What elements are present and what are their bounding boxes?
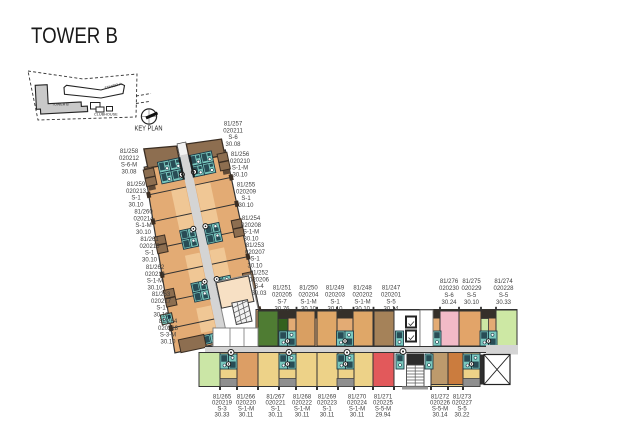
svg-text:81/263: 81/263 xyxy=(152,292,171,298)
svg-text:30.33: 30.33 xyxy=(496,300,512,306)
svg-text:30.14: 30.14 xyxy=(383,307,399,313)
svg-text:S-1: S-1 xyxy=(241,196,251,202)
svg-text:81/255: 81/255 xyxy=(237,183,256,189)
svg-text:020230: 020230 xyxy=(439,286,460,292)
svg-text:30.08: 30.08 xyxy=(225,142,241,148)
svg-text:81/258: 81/258 xyxy=(120,149,139,155)
svg-text:30.24: 30.24 xyxy=(441,300,457,306)
svg-text:30.10: 30.10 xyxy=(247,263,263,269)
svg-text:81/251: 81/251 xyxy=(273,286,292,292)
svg-text:30.11: 30.11 xyxy=(350,413,365,419)
svg-text:81/253: 81/253 xyxy=(246,243,265,249)
svg-text:81/274: 81/274 xyxy=(494,279,513,285)
svg-text:S-1-M: S-1-M xyxy=(147,279,163,285)
svg-text:020206: 020206 xyxy=(249,277,270,283)
svg-text:30.10: 30.10 xyxy=(136,230,152,236)
svg-text:81/247: 81/247 xyxy=(382,286,401,292)
svg-text:81/275: 81/275 xyxy=(462,279,481,285)
svg-text:S-7: S-7 xyxy=(277,300,287,306)
svg-text:020217: 020217 xyxy=(151,299,172,305)
svg-text:30.10: 30.10 xyxy=(327,307,343,313)
svg-text:020209: 020209 xyxy=(236,189,257,195)
svg-text:TOWER B: TOWER B xyxy=(52,103,69,107)
svg-text:020210: 020210 xyxy=(230,159,251,165)
svg-text:020228: 020228 xyxy=(493,286,514,292)
svg-text:30.10: 30.10 xyxy=(142,257,158,263)
svg-text:S-1-M: S-1-M xyxy=(243,230,259,236)
svg-text:81/276: 81/276 xyxy=(440,279,459,285)
svg-text:S-5: S-5 xyxy=(499,293,509,299)
svg-text:S-6: S-6 xyxy=(444,293,454,299)
svg-text:30.14: 30.14 xyxy=(432,413,448,419)
svg-text:KEY PLAN: KEY PLAN xyxy=(135,124,163,133)
svg-text:81/249: 81/249 xyxy=(326,286,345,292)
svg-text:020229: 020229 xyxy=(461,286,482,292)
svg-text:30.11: 30.11 xyxy=(295,413,310,419)
svg-text:30.76: 30.76 xyxy=(274,307,290,313)
svg-text:81/254: 81/254 xyxy=(242,216,261,222)
svg-text:020201: 020201 xyxy=(381,293,402,299)
svg-text:30.11: 30.11 xyxy=(268,413,283,419)
svg-text:CLUBHOUSE: CLUBHOUSE xyxy=(94,113,118,117)
svg-text:30.03: 30.03 xyxy=(251,291,267,297)
svg-text:S-1-M: S-1-M xyxy=(135,223,151,229)
svg-text:020207: 020207 xyxy=(245,250,266,256)
svg-text:30.11: 30.11 xyxy=(239,413,254,419)
svg-text:020203: 020203 xyxy=(325,293,346,299)
svg-text:S-5: S-5 xyxy=(386,300,396,306)
svg-text:020212: 020212 xyxy=(119,156,140,162)
svg-text:S-1-M: S-1-M xyxy=(300,300,316,306)
svg-text:020218: 020218 xyxy=(158,326,179,332)
svg-text:S-1: S-1 xyxy=(131,196,141,202)
svg-text:30.10: 30.10 xyxy=(147,285,163,291)
svg-text:S-6: S-6 xyxy=(228,135,238,141)
svg-text:81/256: 81/256 xyxy=(231,152,250,158)
svg-text:29.94: 29.94 xyxy=(375,413,391,419)
svg-text:S-1: S-1 xyxy=(330,300,340,306)
svg-text:S-1: S-1 xyxy=(156,306,166,312)
svg-text:TOWER B: TOWER B xyxy=(31,23,118,48)
svg-text:81/260: 81/260 xyxy=(134,210,153,216)
svg-text:30.10: 30.10 xyxy=(153,312,169,318)
svg-text:30.10: 30.10 xyxy=(232,172,248,178)
svg-text:S-1-M: S-1-M xyxy=(354,300,370,306)
svg-text:30.10: 30.10 xyxy=(160,339,176,345)
svg-text:S-1: S-1 xyxy=(145,251,155,257)
svg-text:30.10: 30.10 xyxy=(238,203,254,209)
svg-text:81/248: 81/248 xyxy=(353,286,372,292)
svg-text:30.11: 30.11 xyxy=(320,413,335,419)
svg-text:S-1-M: S-1-M xyxy=(232,166,248,172)
svg-text:30.33: 30.33 xyxy=(214,413,230,419)
svg-text:30.10: 30.10 xyxy=(355,307,371,313)
svg-text:020204: 020204 xyxy=(298,293,319,299)
svg-text:020202: 020202 xyxy=(352,293,373,299)
svg-text:S-5: S-5 xyxy=(467,293,477,299)
svg-text:30.10: 30.10 xyxy=(243,236,259,242)
svg-text:S-4: S-4 xyxy=(254,284,264,290)
svg-text:81/261: 81/261 xyxy=(140,237,159,243)
svg-text:30.10: 30.10 xyxy=(128,202,144,208)
svg-text:S-3-M: S-3-M xyxy=(160,333,176,339)
svg-text:020214: 020214 xyxy=(133,216,154,222)
svg-text:81/257: 81/257 xyxy=(224,122,243,128)
svg-text:S-6-M: S-6-M xyxy=(121,163,137,169)
svg-text:30.22: 30.22 xyxy=(454,413,470,419)
svg-text:020216: 020216 xyxy=(145,272,166,278)
svg-text:81/264: 81/264 xyxy=(159,319,178,325)
svg-text:020208: 020208 xyxy=(241,223,262,229)
svg-text:020213: 020213 xyxy=(126,189,147,195)
svg-text:30.10: 30.10 xyxy=(464,300,480,306)
svg-text:81/262: 81/262 xyxy=(146,265,165,271)
svg-text:81/252: 81/252 xyxy=(250,271,269,277)
svg-text:S-1: S-1 xyxy=(250,257,260,263)
svg-text:020205: 020205 xyxy=(272,293,293,299)
svg-text:30.08: 30.08 xyxy=(121,169,137,175)
svg-text:020211: 020211 xyxy=(223,128,243,134)
svg-text:81/250: 81/250 xyxy=(299,286,318,292)
svg-text:020215: 020215 xyxy=(139,244,160,250)
svg-text:30.10: 30.10 xyxy=(301,307,317,313)
svg-text:81/259: 81/259 xyxy=(127,182,146,188)
